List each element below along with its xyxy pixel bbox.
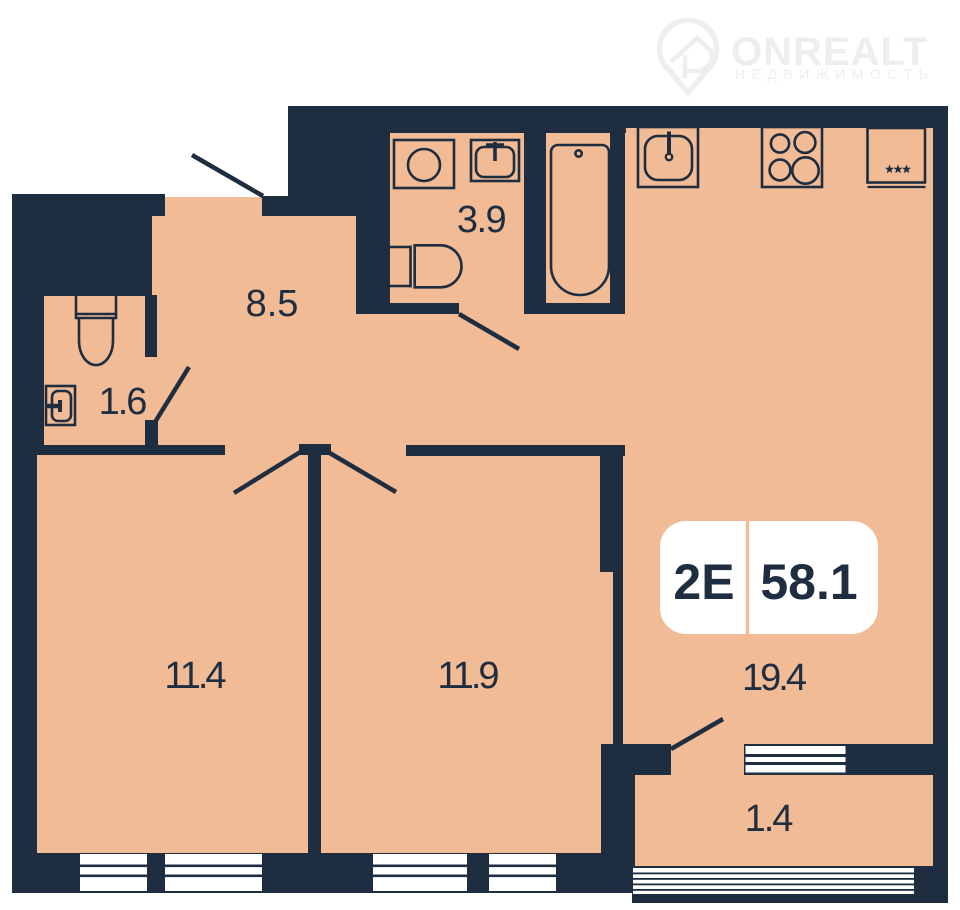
svg-text:8.5: 8.5 xyxy=(246,283,299,325)
svg-text:НЕДВИЖИМОСТЬ: НЕДВИЖИМОСТЬ xyxy=(735,66,934,82)
svg-text:2Е: 2Е xyxy=(673,554,734,610)
svg-text:3.9: 3.9 xyxy=(457,199,506,241)
svg-text:58.1: 58.1 xyxy=(760,554,857,610)
svg-text:1.6: 1.6 xyxy=(99,381,147,423)
svg-text:19.4: 19.4 xyxy=(742,657,807,699)
svg-text:11.4: 11.4 xyxy=(164,655,226,697)
svg-text:1.4: 1.4 xyxy=(745,798,794,840)
svg-text:11.9: 11.9 xyxy=(437,655,498,697)
